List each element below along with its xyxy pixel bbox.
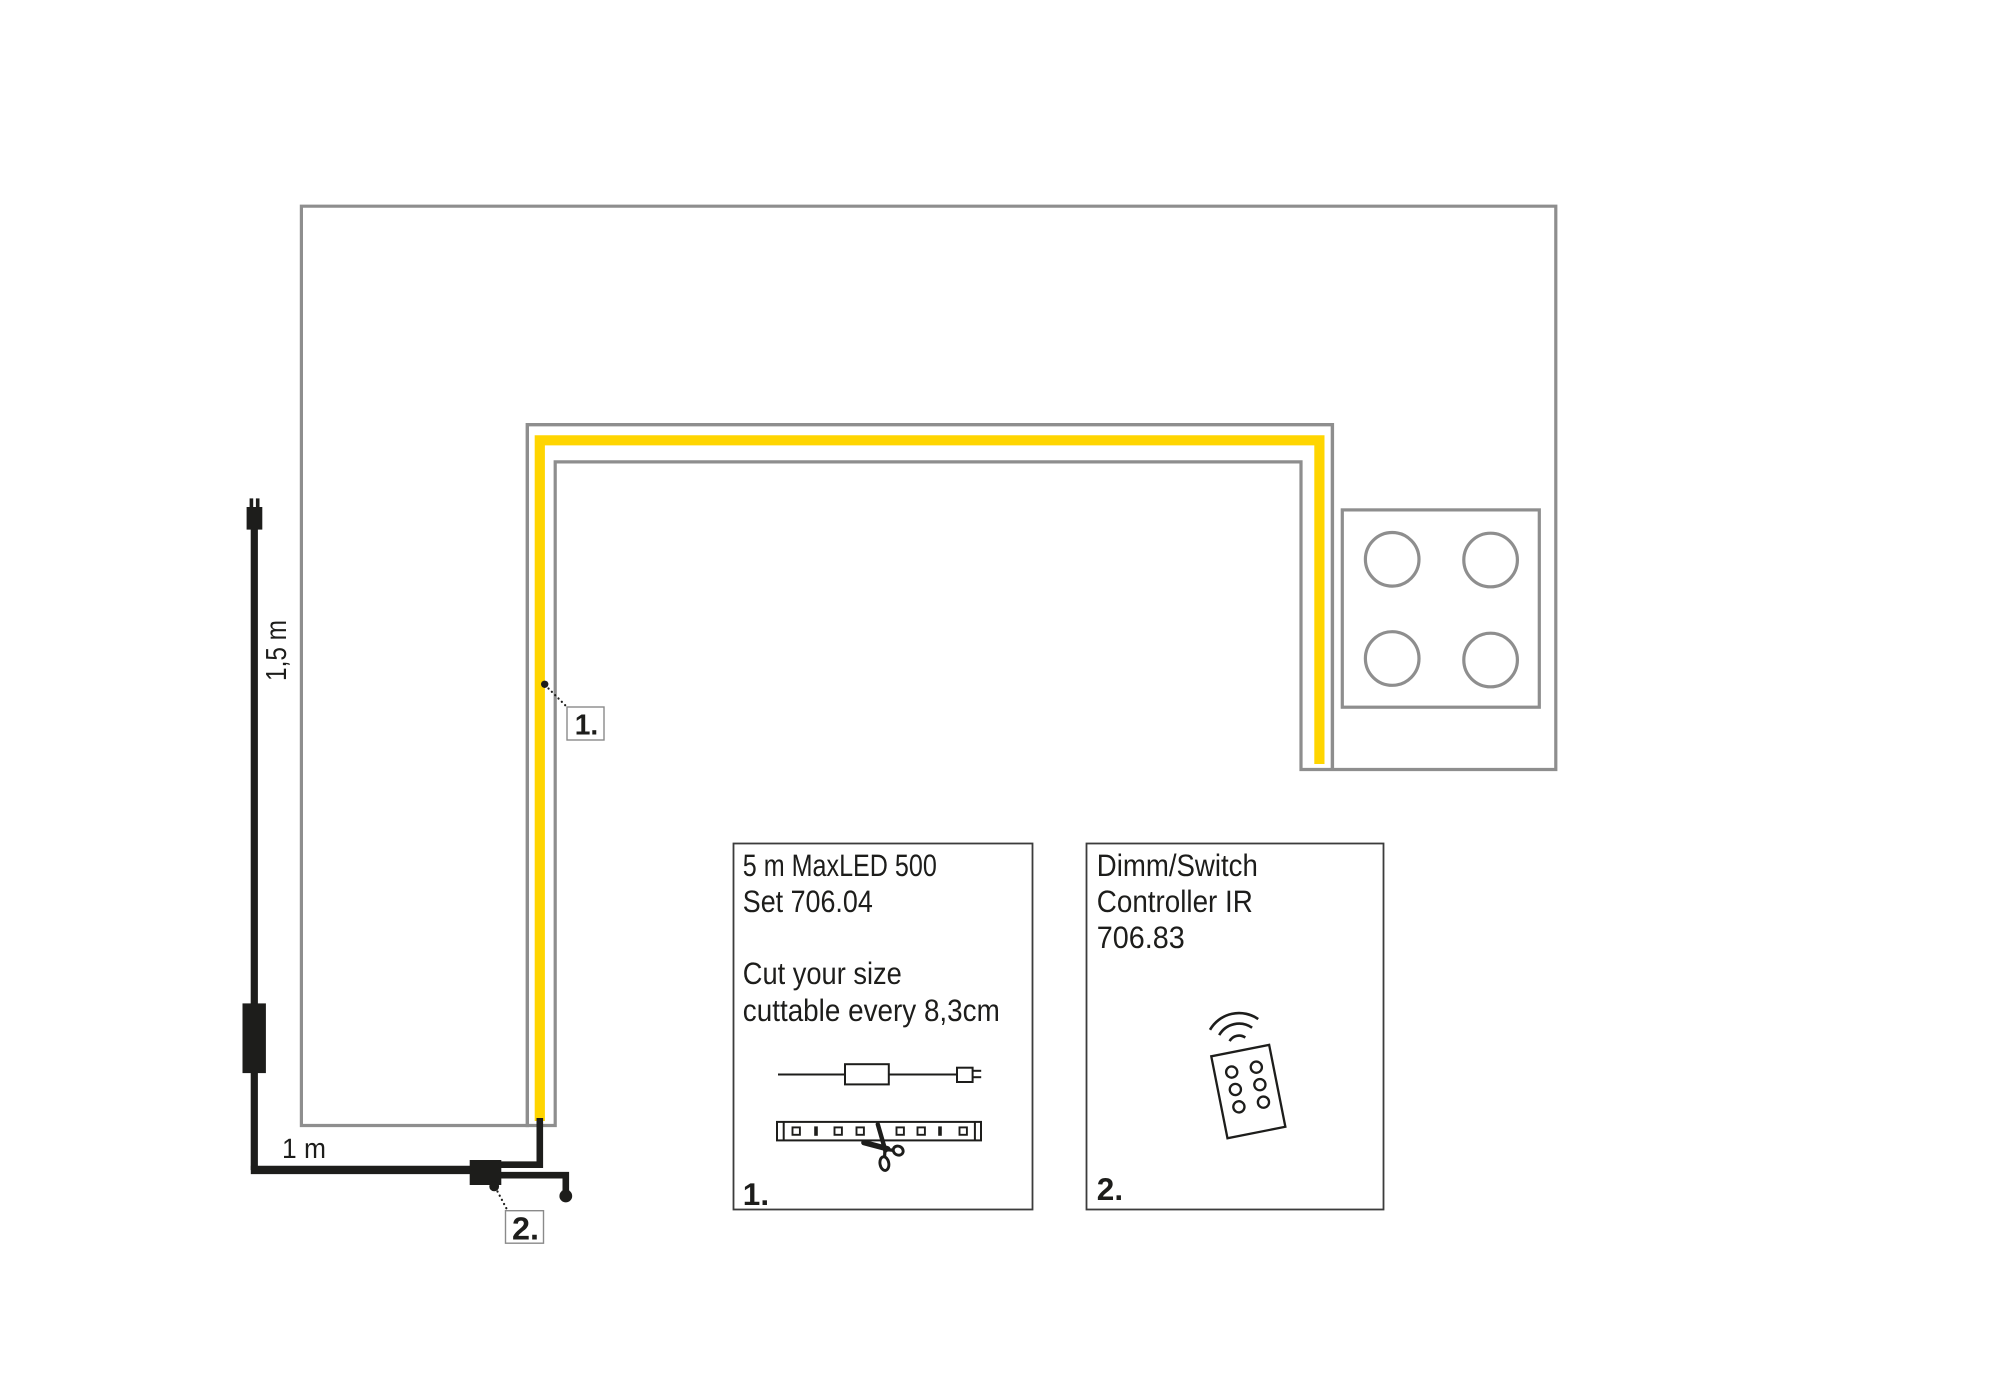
svg-text:1 m: 1 m — [282, 1133, 326, 1164]
svg-text:1.: 1. — [575, 710, 599, 742]
svg-text:706.83: 706.83 — [1097, 920, 1185, 955]
svg-text:2.: 2. — [512, 1211, 539, 1247]
svg-text:2.: 2. — [1097, 1171, 1123, 1207]
svg-text:1.: 1. — [743, 1176, 769, 1212]
svg-text:cuttable every 8,3cm: cuttable every 8,3cm — [743, 993, 1000, 1028]
svg-text:Dimm/Switch: Dimm/Switch — [1097, 848, 1258, 883]
svg-text:Set 706.04: Set 706.04 — [743, 884, 873, 919]
svg-text:5 m MaxLED 500: 5 m MaxLED 500 — [743, 848, 937, 883]
svg-text:Controller IR: Controller IR — [1097, 884, 1253, 919]
svg-text:1,5 m: 1,5 m — [261, 620, 293, 681]
svg-text:Cut your size: Cut your size — [743, 956, 902, 991]
